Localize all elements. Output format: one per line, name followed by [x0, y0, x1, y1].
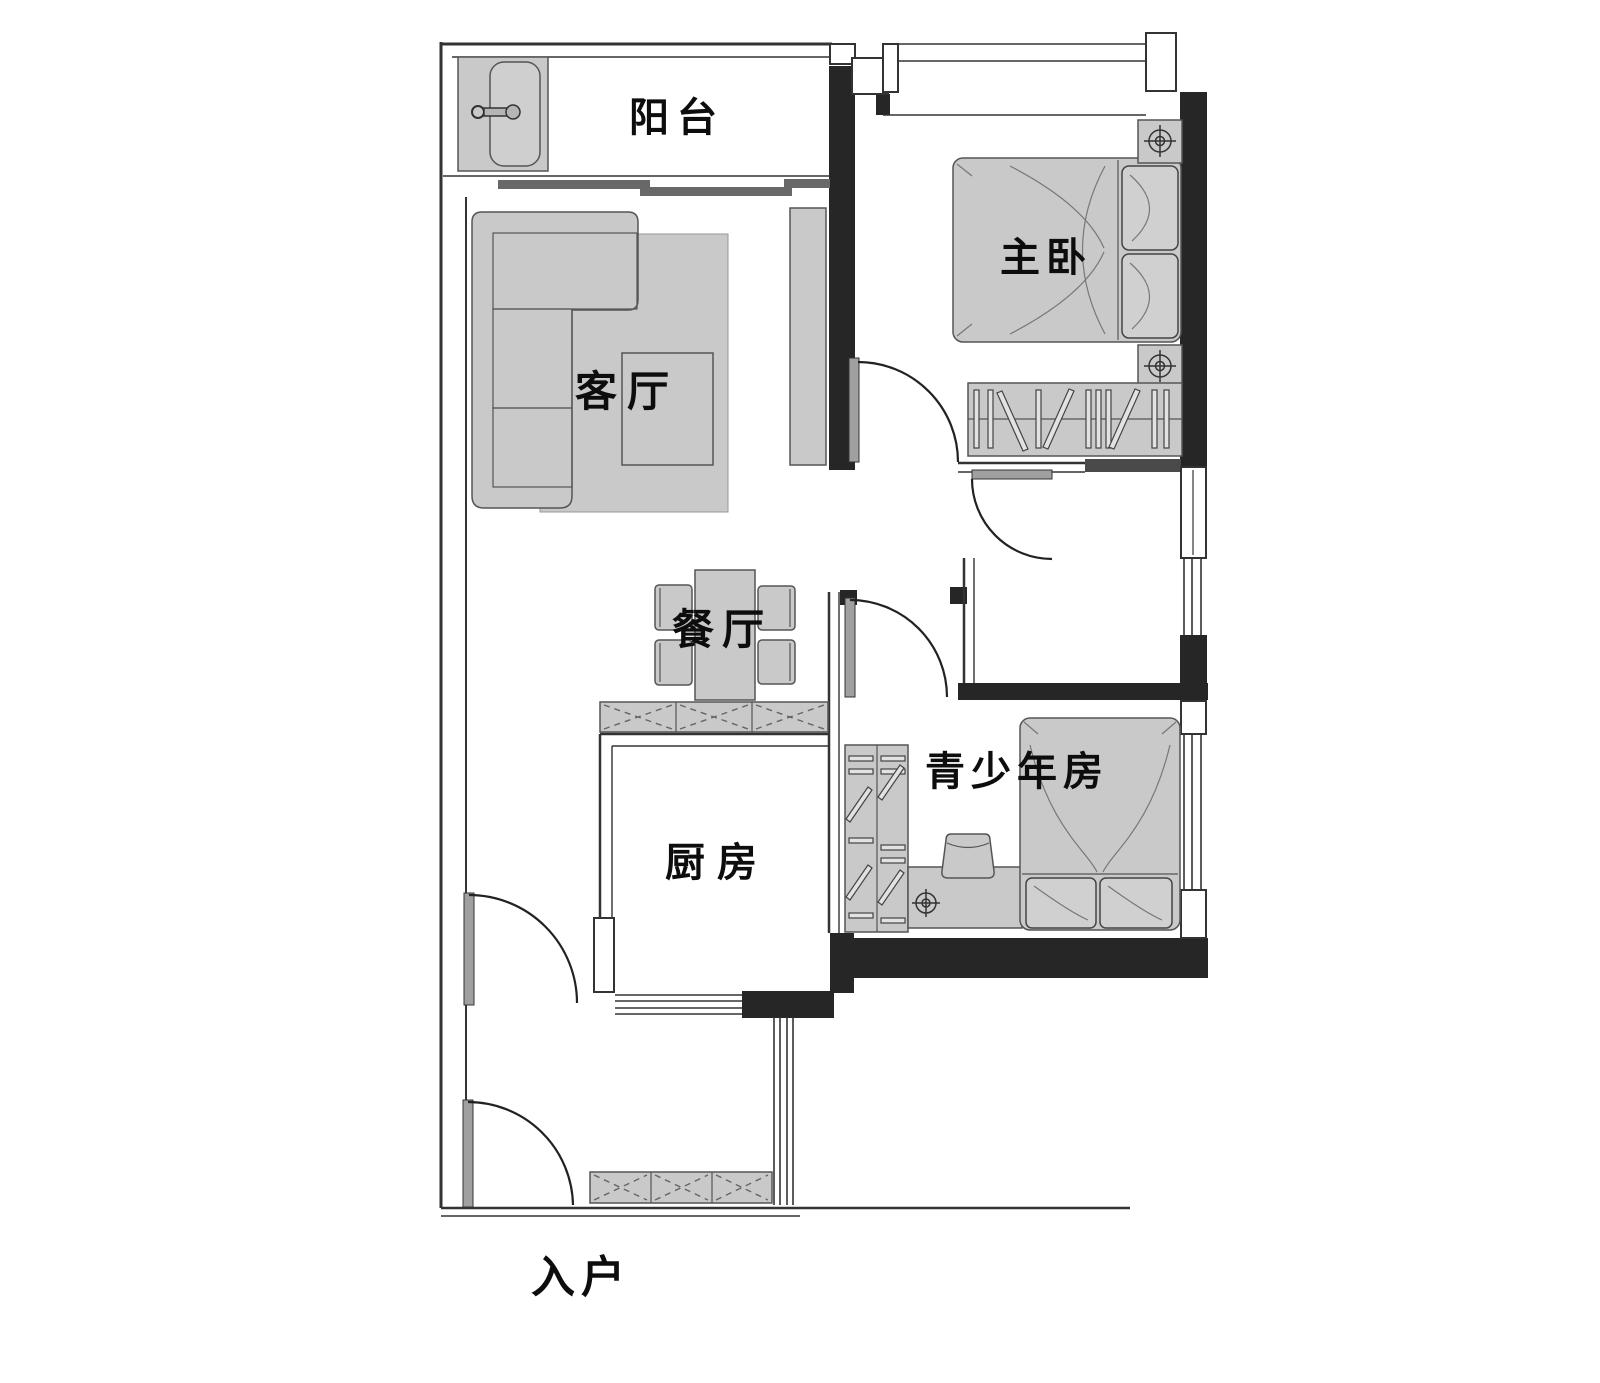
tv-cabinet	[790, 208, 826, 465]
label-teen-room: 青少年房	[925, 750, 1109, 794]
label-kitchen: 厨房	[665, 841, 769, 885]
label-entrance: 入户	[531, 1253, 631, 1302]
label-living-room: 客厅	[575, 368, 679, 415]
entrance-door-upper	[464, 893, 577, 1005]
wall-kitchen-teen-connector	[830, 933, 854, 993]
wall-bathroom-top	[1085, 459, 1181, 472]
teen-room-door	[845, 598, 947, 697]
teen-wardrobe	[845, 745, 908, 932]
entrance-door-lower	[463, 1100, 573, 1207]
wall-master-right	[1180, 92, 1207, 467]
shoe-cabinet	[590, 1172, 772, 1203]
label-dining-room: 餐厅	[672, 606, 772, 653]
post-master-window-left	[883, 44, 898, 92]
post-right-wall-lower	[1181, 890, 1206, 938]
label-master-bedroom: 主卧	[1000, 236, 1092, 280]
wall-right-mid	[1180, 635, 1207, 701]
sideboard-cabinet	[600, 702, 828, 732]
post-right-wall-mid	[1181, 701, 1206, 734]
pillow	[1122, 254, 1178, 338]
pillow	[1026, 878, 1096, 928]
post-master-window-right	[1146, 33, 1176, 91]
nightstand	[1138, 345, 1182, 388]
desk-chair	[942, 834, 994, 878]
bathroom-window	[1184, 558, 1201, 635]
wall-teenroom-bottom	[846, 938, 1208, 978]
nightstand	[1138, 120, 1182, 163]
entry-corridor-screen	[774, 1017, 793, 1205]
label-balcony: 阳台	[629, 96, 725, 140]
floor-plan: 阳台 主卧 客厅 餐厅 厨房 青少年房 入户	[0, 0, 1600, 1383]
wall-teenroom-top	[958, 683, 1208, 700]
post-kitchen-door-jamb	[594, 918, 614, 992]
teen-room-window	[1184, 734, 1201, 890]
master-wardrobe	[968, 383, 1182, 456]
laundry-sink	[458, 57, 548, 171]
wall-kitchen-bottom	[742, 991, 834, 1018]
bathroom-door	[972, 470, 1052, 559]
pillow	[1100, 878, 1172, 928]
furniture	[458, 57, 1182, 1203]
kitchen-sliding-door	[615, 995, 742, 1014]
pillow	[1122, 166, 1178, 250]
balcony-sliding-door	[498, 179, 830, 196]
wall-master-left-nub	[876, 94, 890, 115]
master-bedroom-door	[849, 358, 958, 462]
master-bedroom-window	[883, 44, 1146, 115]
